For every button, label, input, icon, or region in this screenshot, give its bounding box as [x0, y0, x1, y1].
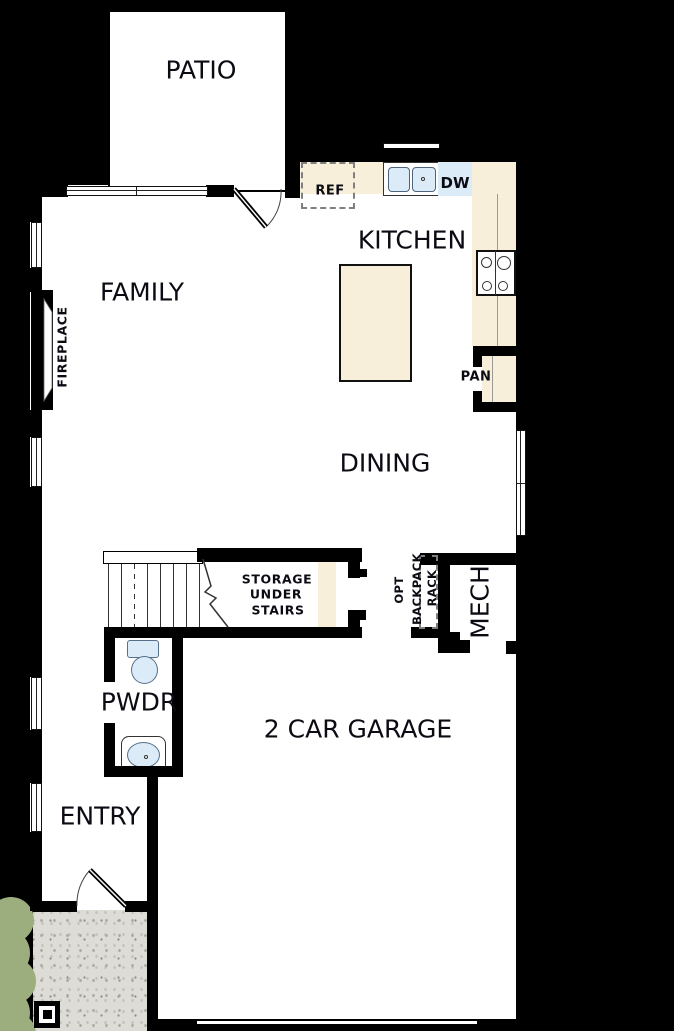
- window-tick: [136, 187, 137, 195]
- vanity-drain: [144, 755, 148, 759]
- wall: [33, 901, 77, 912]
- porch-column-core: [43, 1010, 52, 1019]
- wall: [516, 535, 528, 1031]
- stair-tread: [199, 564, 200, 627]
- wall: [30, 185, 68, 197]
- room-label-entry: ENTRY: [60, 802, 141, 831]
- wall: [348, 569, 367, 577]
- room-label-garage: 2 CAR GARAGE: [264, 715, 452, 744]
- room-label-family: FAMILY: [100, 278, 184, 307]
- stair-tread: [173, 564, 174, 627]
- room-label-powder: PWDR: [101, 688, 177, 717]
- room-label-dining: DINING: [340, 449, 431, 478]
- fireplace-box: [31, 290, 53, 410]
- sink-basin-left: [388, 167, 410, 192]
- room-label-patio: PATIO: [166, 56, 237, 85]
- pantry-shelf-edge: [492, 356, 493, 402]
- pwdr-wall: [104, 632, 115, 682]
- pantry-wall: [473, 391, 482, 412]
- wall: [30, 410, 42, 437]
- burner: [498, 281, 508, 291]
- stair-landing-rail: [103, 551, 203, 564]
- room-label-kitchen: KITCHEN: [358, 226, 466, 255]
- pantry-wall: [473, 346, 482, 367]
- wall: [30, 197, 42, 222]
- backpack-note-1: OPT: [392, 576, 406, 603]
- storage-note-3: STAIRS: [251, 603, 304, 618]
- backpack-note-2: BACKPACK: [410, 553, 424, 625]
- burner: [481, 257, 492, 268]
- floor-plan: PATIO KITCHEN FAMILY DINING 2 CAR GARAGE…: [0, 0, 674, 1031]
- fridge-label: REF: [315, 184, 344, 199]
- window-mullion: [36, 784, 37, 831]
- window-tick: [517, 483, 525, 484]
- mech-left-wall: [438, 562, 450, 632]
- backpack-note-3: RACK: [425, 570, 439, 607]
- wall: [506, 641, 520, 654]
- wall: [30, 268, 42, 292]
- burner: [482, 281, 492, 291]
- sink-drain: [421, 177, 425, 181]
- wall: [477, 1019, 528, 1031]
- stair-tread: [108, 564, 109, 627]
- storage-top-wall: [197, 548, 362, 562]
- wall: [30, 487, 42, 677]
- storage-shelf: [318, 562, 336, 627]
- cooktop: [476, 250, 516, 296]
- patio-slab: [108, 10, 287, 192]
- window-mullion: [36, 438, 37, 486]
- shrub: [0, 1012, 36, 1031]
- window-mullion: [36, 678, 37, 729]
- wall: [206, 185, 234, 197]
- window: [66, 186, 208, 196]
- garage-floor: [148, 911, 516, 1021]
- dishwasher-label: DW: [441, 174, 470, 192]
- wall: [158, 1019, 198, 1031]
- wall: [30, 832, 42, 911]
- stair-tread: [160, 564, 161, 627]
- stairs-bottom-wall: [104, 627, 362, 638]
- entry-garage-wall: [147, 773, 158, 1031]
- wall: [30, 730, 42, 783]
- window-mullion: [36, 223, 37, 267]
- pwdr-wall: [104, 766, 183, 777]
- wall: [516, 162, 528, 432]
- wall: [450, 640, 470, 653]
- window-mullion: [67, 190, 207, 191]
- fireplace-label: FIREPLACE: [55, 306, 70, 387]
- pantry-label: PAN: [461, 370, 492, 385]
- storage-note-2: UNDER: [250, 587, 302, 602]
- room-label-mech: MECH: [466, 565, 495, 639]
- kitchen-island: [339, 264, 412, 382]
- toilet-bowl: [131, 656, 158, 684]
- stair-tread: [186, 564, 187, 627]
- wall: [290, 148, 528, 162]
- garage-door: [197, 1019, 477, 1026]
- cooktop-divider: [495, 251, 496, 295]
- stair-tread: [134, 564, 135, 627]
- storage-note-1: STORAGE: [242, 572, 312, 587]
- stair-tread: [147, 564, 148, 627]
- burner: [497, 256, 511, 270]
- stair-tread: [121, 564, 122, 627]
